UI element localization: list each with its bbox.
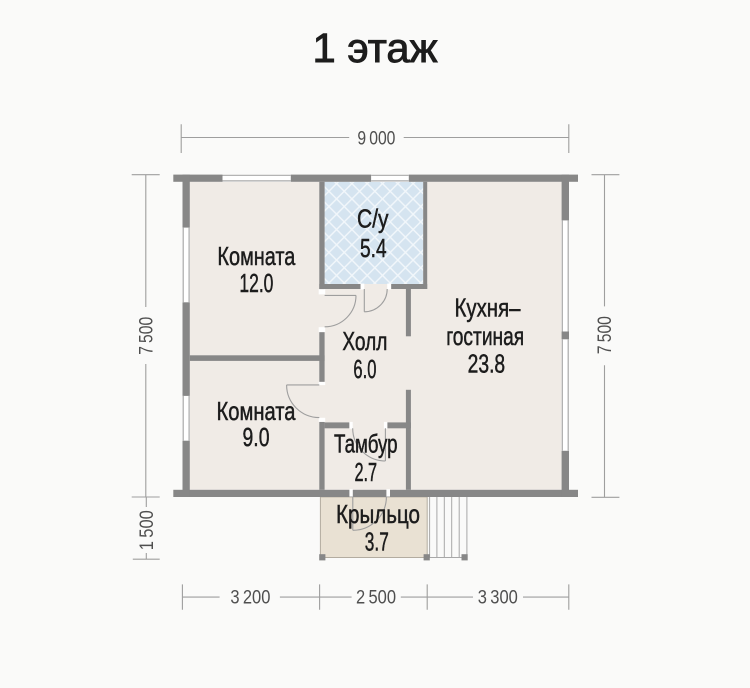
svg-text:7 500: 7 500 bbox=[595, 316, 616, 354]
svg-text:9 000: 9 000 bbox=[357, 128, 395, 149]
svg-text:5.4: 5.4 bbox=[360, 233, 387, 263]
svg-text:3 200: 3 200 bbox=[230, 588, 270, 609]
svg-text:7 500: 7 500 bbox=[136, 317, 157, 355]
svg-text:гостиная: гостиная bbox=[446, 321, 524, 351]
svg-text:23.8: 23.8 bbox=[468, 348, 506, 378]
svg-text:Крыльцо: Крыльцо bbox=[336, 499, 420, 529]
svg-text:Тамбур: Тамбур bbox=[334, 429, 398, 459]
svg-text:Комната: Комната bbox=[217, 241, 295, 271]
svg-text:2 500: 2 500 bbox=[356, 588, 396, 609]
svg-text:Холл: Холл bbox=[342, 326, 387, 356]
svg-text:1 500: 1 500 bbox=[137, 510, 158, 550]
svg-text:1 этаж: 1 этаж bbox=[313, 25, 439, 71]
svg-text:12.0: 12.0 bbox=[239, 268, 273, 298]
svg-text:Кухня–: Кухня– bbox=[455, 292, 521, 322]
svg-text:3 300: 3 300 bbox=[478, 588, 518, 609]
svg-text:2.7: 2.7 bbox=[354, 457, 377, 487]
svg-text:6.0: 6.0 bbox=[353, 354, 376, 384]
svg-text:9.0: 9.0 bbox=[243, 422, 270, 452]
svg-text:С/у: С/у bbox=[357, 204, 389, 234]
svg-text:3.7: 3.7 bbox=[365, 527, 389, 557]
